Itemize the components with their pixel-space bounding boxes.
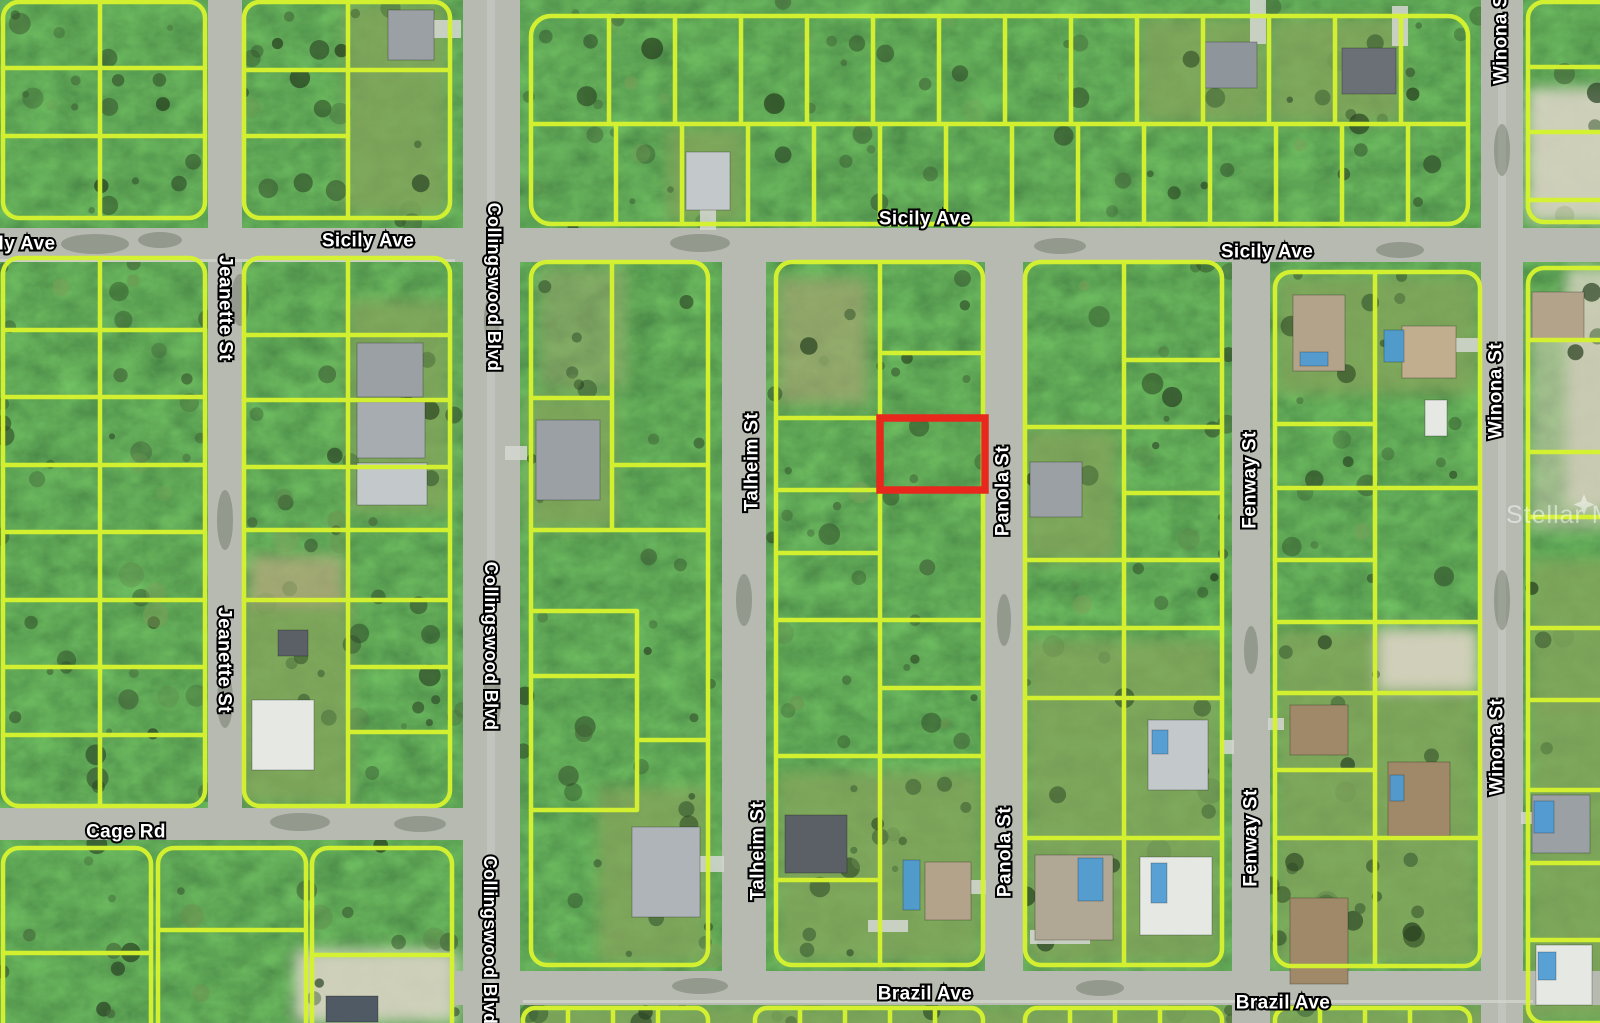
street-label-jeanette-st-2: Jeanette St xyxy=(214,607,235,713)
street-label-winona-st-2: Winona St xyxy=(1486,343,1507,440)
street-label-sicily-ave-2: Sicily Ave xyxy=(879,209,971,230)
house-roof xyxy=(252,700,314,770)
street-label-collingswood-blvd-1: Collingswood Blvd xyxy=(484,203,504,372)
house-roof xyxy=(632,827,700,917)
aerial-parcel-map: ly Ave Sicily Ave Sicily Ave Sicily Ave … xyxy=(0,0,1600,1023)
pool xyxy=(1390,775,1404,801)
pool xyxy=(1384,330,1404,362)
street-label-ly-ave: ly Ave xyxy=(0,234,55,255)
street-label-fenway-st-2: Fenway St xyxy=(1241,789,1262,887)
house-roof xyxy=(388,10,434,60)
shed-roof xyxy=(278,630,308,656)
pool xyxy=(1078,858,1103,901)
road-fenway-st xyxy=(1232,228,1270,1023)
street-label-collingswood-blvd-3: Collingswood Blvd xyxy=(480,856,500,1023)
pool xyxy=(1151,863,1167,903)
house-roof xyxy=(1030,462,1082,517)
watermark-text: Stellar MLS xyxy=(1506,501,1600,529)
road-brazil-ave xyxy=(455,971,1600,1005)
street-label-collingswood-blvd-2: Collingswood Blvd xyxy=(481,562,501,731)
pool xyxy=(1534,801,1554,833)
house-roof xyxy=(1290,898,1348,984)
trailer-roof xyxy=(1425,400,1447,436)
street-label-jeanette-st-1: Jeanette St xyxy=(215,255,236,361)
house-roof xyxy=(925,862,971,920)
pool xyxy=(1152,730,1168,754)
house-roof xyxy=(1290,705,1348,755)
street-label-talheim-st-2: Talheim St xyxy=(748,801,769,900)
house-roof xyxy=(1532,292,1584,340)
house-roof xyxy=(686,152,730,210)
street-label-panola-st-1: Panola St xyxy=(993,446,1014,536)
street-label-winona-st-1: Winona St xyxy=(1491,0,1512,84)
house-roof xyxy=(1205,42,1257,88)
street-label-sicily-ave-3: Sicily Ave xyxy=(1221,242,1313,263)
house-roof xyxy=(326,996,378,1022)
street-label-panola-st-2: Panola St xyxy=(995,807,1016,897)
pool xyxy=(1538,952,1556,980)
house-roof xyxy=(1402,326,1456,378)
house-roof xyxy=(357,402,425,458)
house-roof xyxy=(1342,48,1396,94)
map-image: ly Ave Sicily Ave Sicily Ave Sicily Ave … xyxy=(0,0,1600,1023)
street-label-brazil-ave-1: Brazil Ave xyxy=(878,984,972,1005)
pool xyxy=(1300,352,1328,366)
street-label-cage-rd: Cage Rd xyxy=(86,822,166,843)
street-label-fenway-st-1: Fenway St xyxy=(1240,431,1261,529)
street-label-brazil-ave-2: Brazil Ave xyxy=(1236,993,1330,1014)
house-roof xyxy=(785,815,847,873)
street-label-winona-st-3: Winona St xyxy=(1487,699,1508,796)
street-label-sicily-ave-1: Sicily Ave xyxy=(322,231,414,252)
street-label-talheim-st-1: Talheim St xyxy=(742,412,763,511)
pool xyxy=(903,860,920,910)
house-roof xyxy=(536,420,600,500)
house-roof xyxy=(357,463,427,505)
house-roof xyxy=(357,343,423,397)
